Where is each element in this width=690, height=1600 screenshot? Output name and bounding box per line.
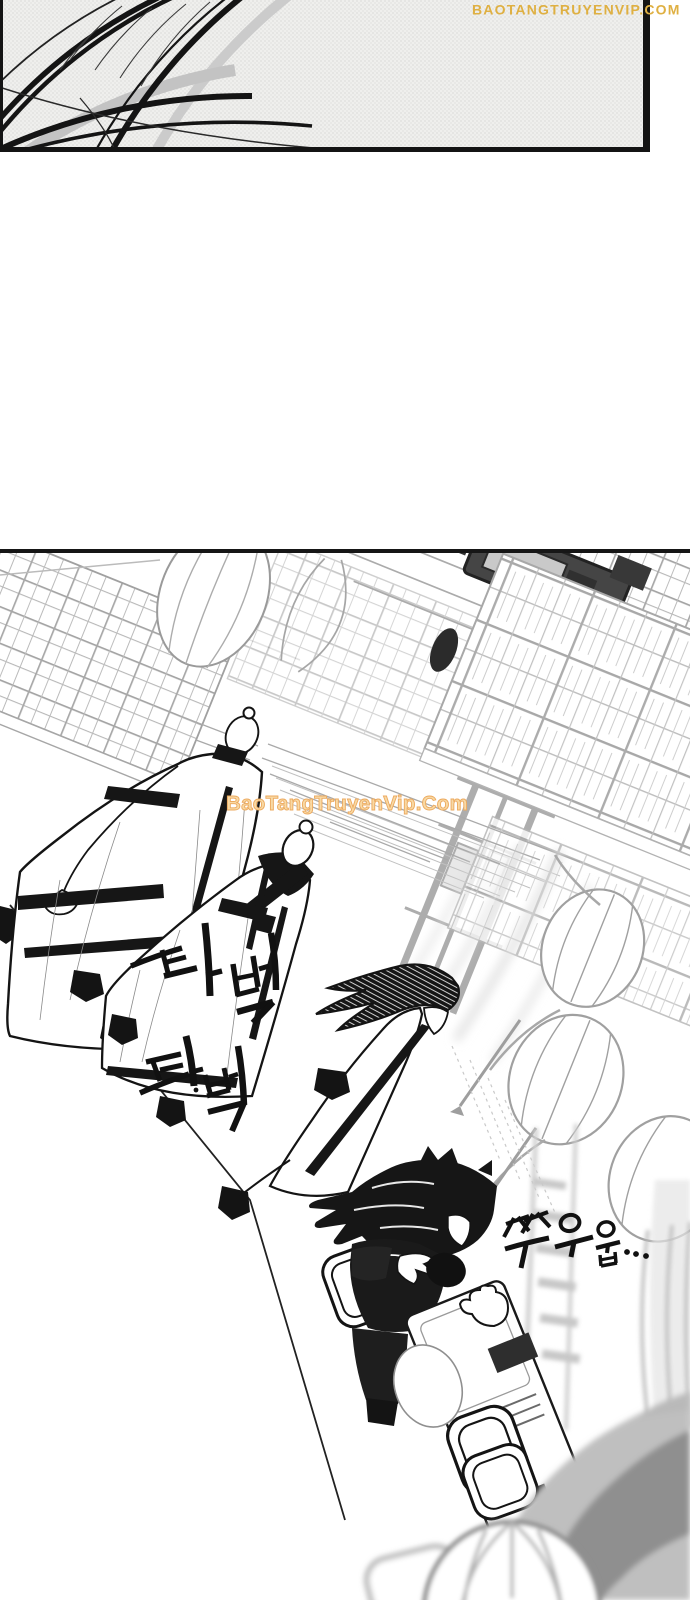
svg-text:BAOTANGTRUYENVIP.COM: BAOTANGTRUYENVIP.COM — [472, 2, 681, 18]
svg-text:BaoTangTruyenVip.Com: BaoTangTruyenVip.Com — [226, 792, 468, 815]
